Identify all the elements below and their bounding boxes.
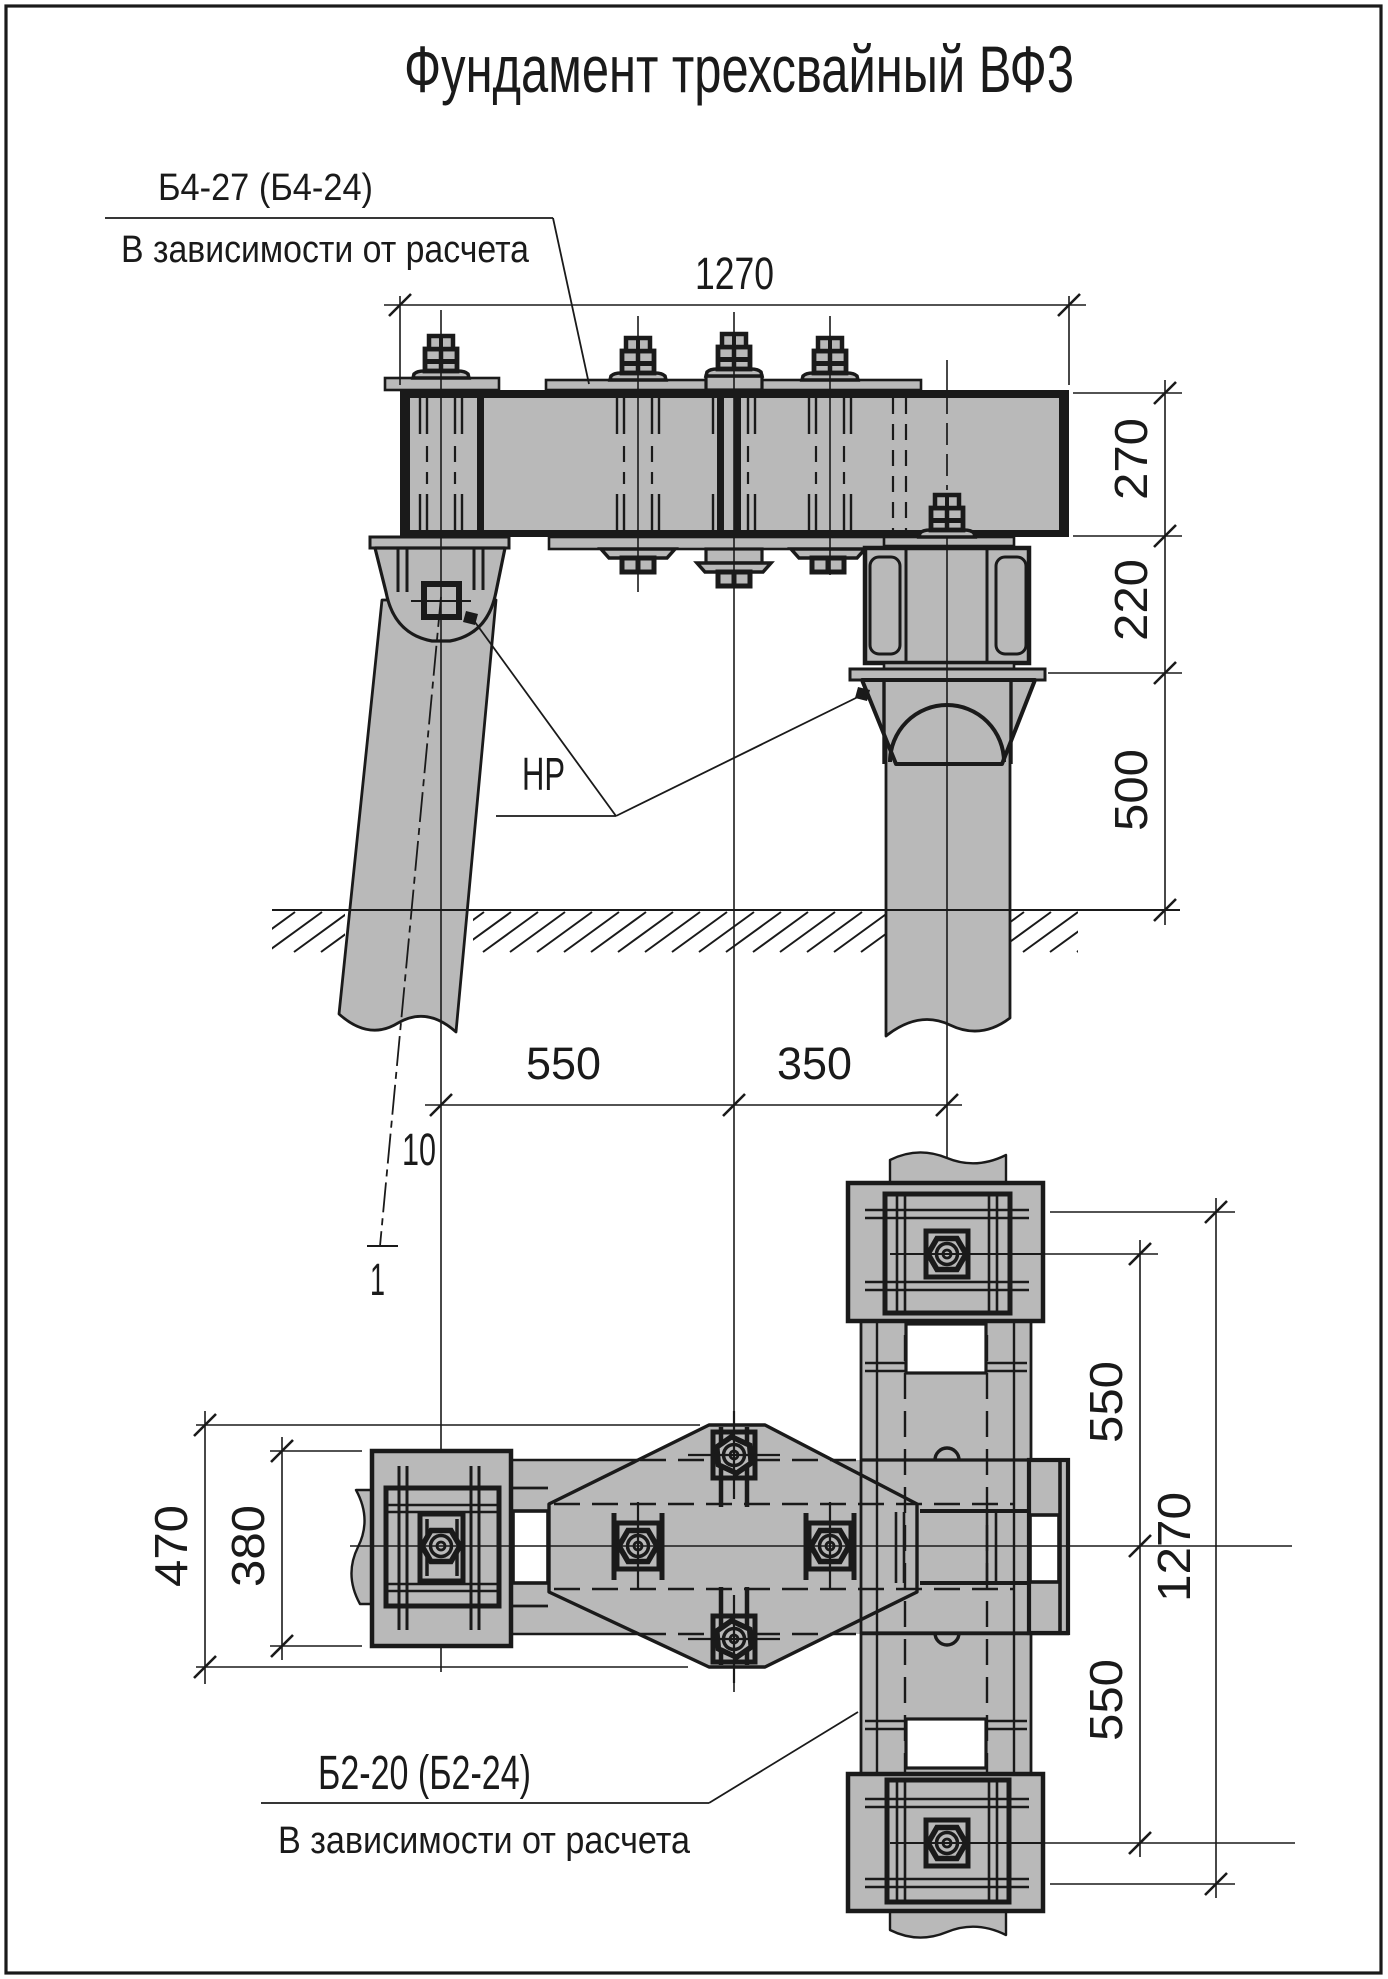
svg-text:Б2-20 (Б2-24): Б2-20 (Б2-24) [318, 1747, 531, 1800]
svg-text:500: 500 [1105, 749, 1157, 831]
svg-text:470: 470 [145, 1505, 197, 1587]
svg-text:270: 270 [1105, 418, 1157, 500]
svg-text:220: 220 [1105, 559, 1157, 641]
svg-text:380: 380 [222, 1505, 274, 1587]
svg-text:1: 1 [370, 1254, 385, 1305]
svg-text:Фундамент трехсвайный ВФ3: Фундамент трехсвайный ВФ3 [404, 32, 1074, 106]
svg-text:1270: 1270 [695, 248, 774, 299]
svg-text:10: 10 [402, 1124, 436, 1175]
svg-text:550: 550 [1080, 1659, 1132, 1741]
svg-text:550: 550 [526, 1038, 601, 1089]
svg-text:350: 350 [777, 1038, 852, 1089]
svg-text:НР: НР [522, 748, 565, 800]
svg-text:В зависимости от расчета: В зависимости от расчета [121, 229, 530, 271]
svg-text:В зависимости от расчета: В зависимости от расчета [278, 1820, 691, 1862]
svg-text:Б4-27 (Б4-24): Б4-27 (Б4-24) [158, 167, 373, 209]
svg-text:550: 550 [1080, 1361, 1132, 1443]
svg-text:1270: 1270 [1148, 1492, 1200, 1602]
